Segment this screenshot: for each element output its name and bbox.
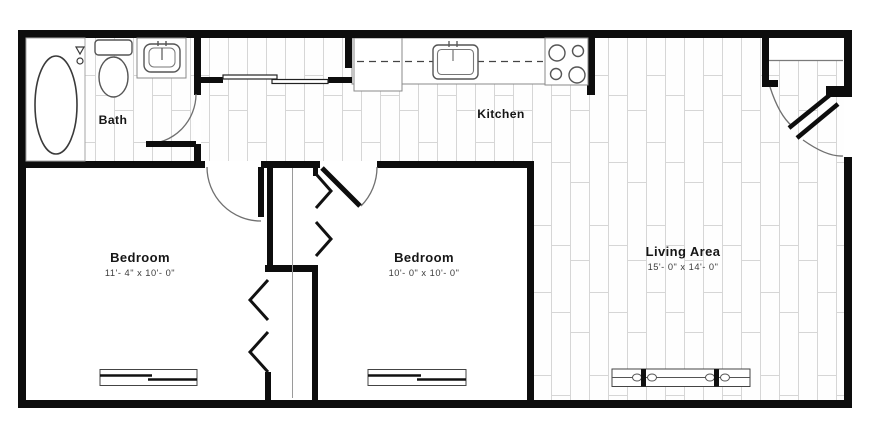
bedroom2-closet-bifold-doors [316,174,331,256]
bedroom2-window [368,370,466,386]
bedroom1-door [207,167,264,221]
refrigerator-icon [354,38,402,91]
floor-plan-drawing: Bath Kitchen Bedroom 11'- 4" x 10'- 0" B… [0,0,870,439]
floor-plan: Bath Kitchen Bedroom 11'- 4" x 10'- 0" B… [0,0,870,439]
bedroom1-window [100,370,197,386]
living-area-dimensions: 15'- 0" x 14'- 0" [648,262,719,272]
bedroom1-label: Bedroom [110,250,170,265]
bedroom2-door [322,167,377,206]
bedroom2-label: Bedroom [394,250,454,265]
bedroom1-dimensions: 11'- 4" x 10'- 0" [105,268,175,278]
bathtub-icon [26,38,85,161]
stove-icon [545,38,588,85]
kitchen-label: Kitchen [477,107,525,121]
bath-label: Bath [99,113,128,127]
living-area-label: Living Area [646,244,721,259]
living-area-window [612,369,750,387]
kitchen-sink-icon [433,41,478,79]
bedroom2-dimensions: 10'- 0" x 10'- 0" [389,268,460,278]
bedroom1-closet-bifold-doors [250,280,268,372]
bath-sink-icon [137,38,186,78]
entry-closet [769,38,844,61]
